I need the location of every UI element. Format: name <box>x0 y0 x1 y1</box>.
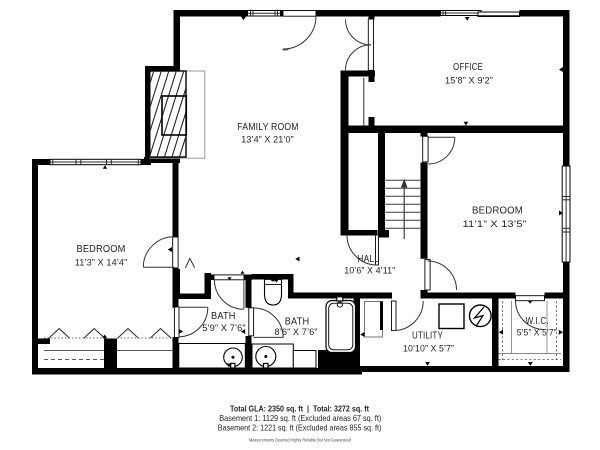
svg-text:Measurements Deemed Highly Rel: Measurements Deemed Highly Reliable But … <box>249 437 351 442</box>
svg-text:BATH: BATH <box>211 311 236 322</box>
svg-text:11’1” X 13’5”: 11’1” X 13’5” <box>463 218 527 229</box>
svg-text:UTILITY: UTILITY <box>412 331 443 342</box>
svg-text:Total GLA: 2350 sq. ft | Tot: Total GLA: 2350 sq. ft | Total: 3272 sq.… <box>230 403 369 413</box>
svg-text:Basement 1: 1129 sq. ft (Exclu: Basement 1: 1129 sq. ft (Excluded areas … <box>219 413 381 423</box>
svg-text:5’9” X 7’6”: 5’9” X 7’6” <box>202 322 245 333</box>
svg-text:BEDROOM: BEDROOM <box>77 244 126 255</box>
svg-text:10’6” X 4’11”: 10’6” X 4’11” <box>344 265 395 276</box>
svg-text:11’3” X 14’4”: 11’3” X 14’4” <box>75 257 128 268</box>
svg-text:HALL: HALL <box>357 254 379 265</box>
svg-text:5’5” X 5’7”: 5’5” X 5’7” <box>517 327 557 338</box>
svg-text:W.I.C.: W.I.C. <box>526 316 549 327</box>
svg-text:10’10” X 5’7”: 10’10” X 5’7” <box>403 343 454 354</box>
svg-text:15’8” X 9’2”: 15’8” X 9’2” <box>445 75 493 86</box>
svg-text:13’4” X 21’0”: 13’4” X 21’0” <box>241 134 294 145</box>
svg-text:BEDROOM: BEDROOM <box>472 206 523 217</box>
svg-text:OFFICE: OFFICE <box>453 62 483 73</box>
svg-text:8’6” X 7’6”: 8’6” X 7’6” <box>275 326 318 337</box>
svg-text:Basement 2: 1221 sq. ft (Exclu: Basement 2: 1221 sq. ft (Excluded areas … <box>218 423 382 433</box>
svg-text:FAMILY ROOM: FAMILY ROOM <box>237 122 298 133</box>
